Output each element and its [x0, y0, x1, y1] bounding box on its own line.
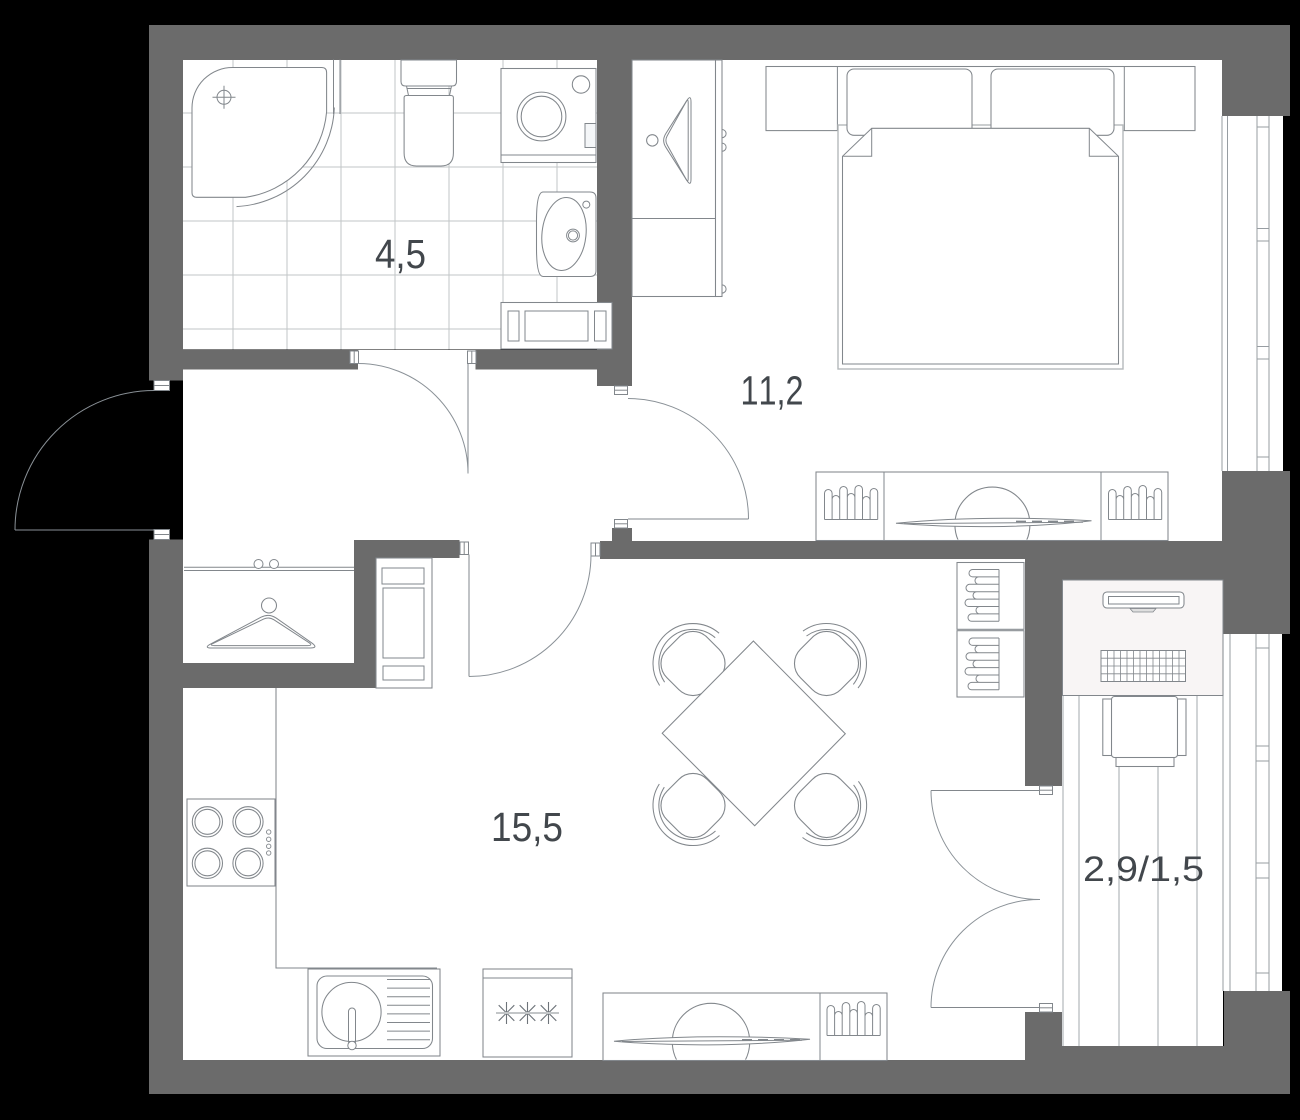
svg-text:2,9/1,5: 2,9/1,5: [1083, 850, 1204, 889]
svg-text:15,5: 15,5: [491, 804, 563, 850]
svg-text:11,2: 11,2: [741, 368, 804, 414]
svg-text:4,5: 4,5: [375, 231, 426, 277]
